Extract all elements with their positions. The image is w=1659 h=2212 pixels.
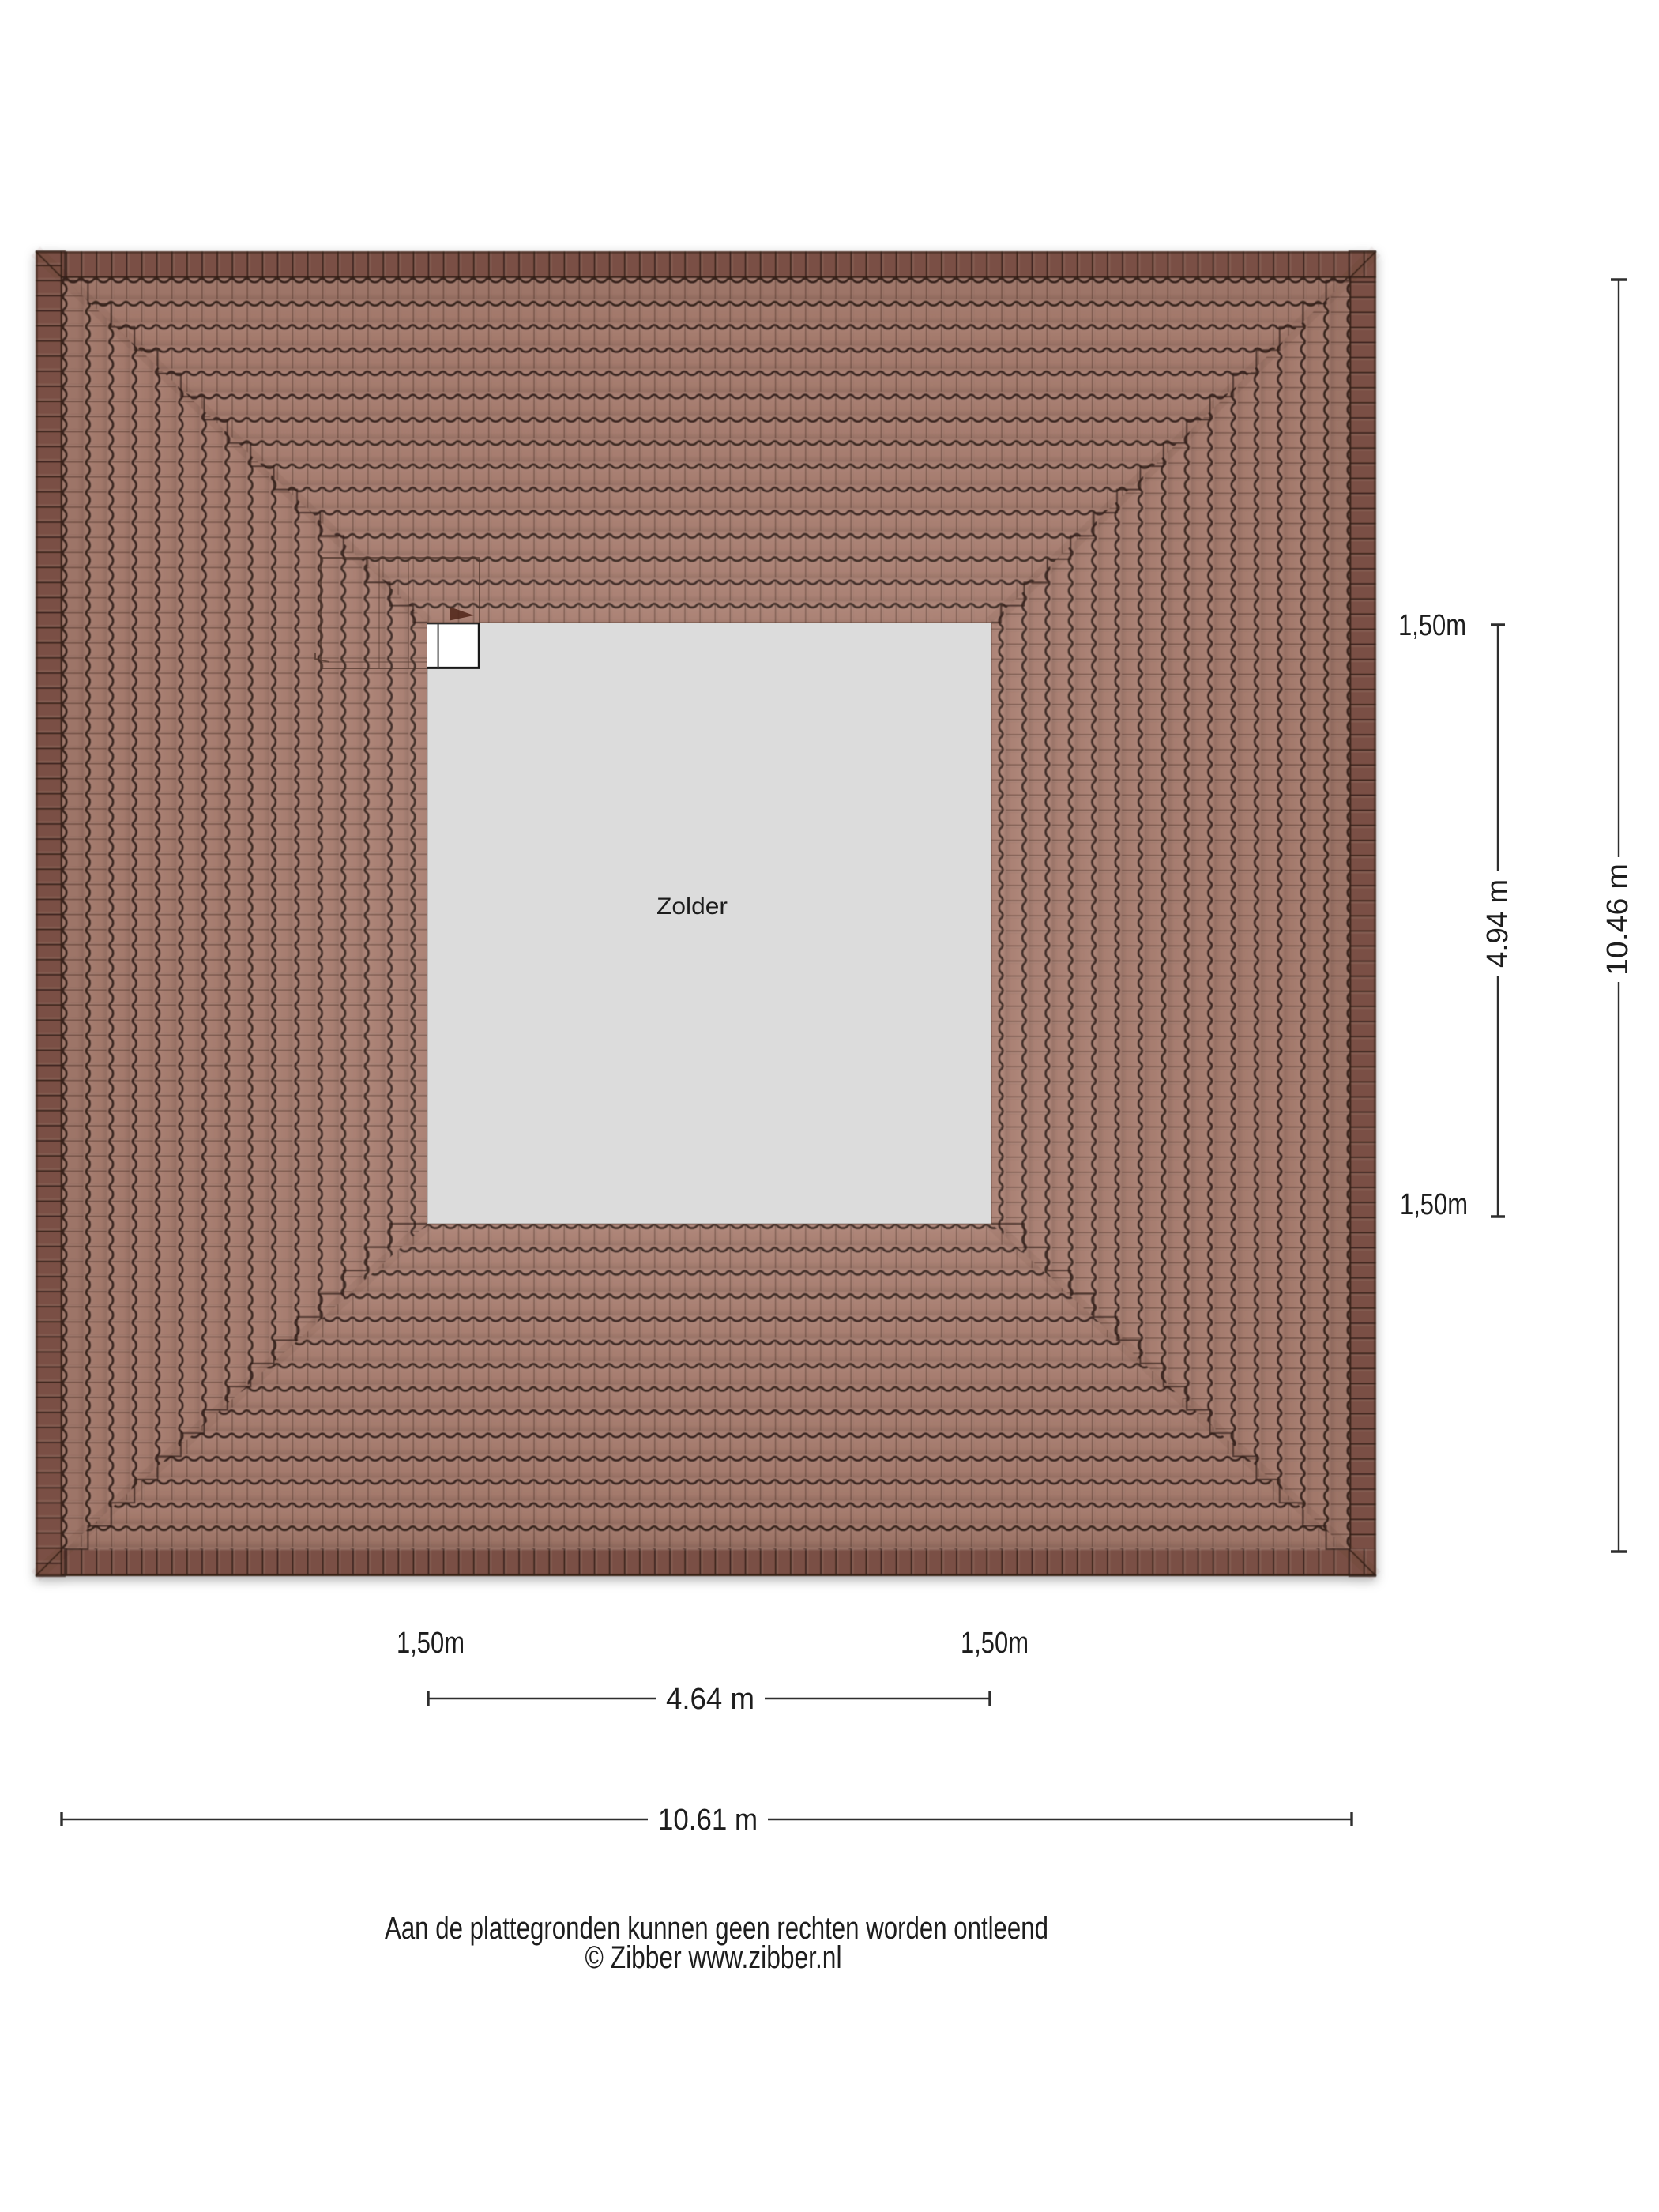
svg-text:1,50m: 1,50m [1398, 609, 1466, 642]
svg-text:4.64 m: 4.64 m [666, 1683, 754, 1716]
svg-text:Zolder: Zolder [656, 893, 728, 920]
svg-text:10.61 m: 10.61 m [658, 1804, 758, 1837]
svg-text:© Zibber www.zibber.nl: © Zibber www.zibber.nl [585, 1940, 842, 1975]
svg-text:10.46 m: 10.46 m [1601, 863, 1635, 976]
svg-text:1,50m: 1,50m [961, 1627, 1029, 1660]
svg-text:4.94 m: 4.94 m [1481, 879, 1514, 968]
svg-text:1,50m: 1,50m [397, 1627, 465, 1660]
svg-text:1,50m: 1,50m [1400, 1188, 1468, 1221]
